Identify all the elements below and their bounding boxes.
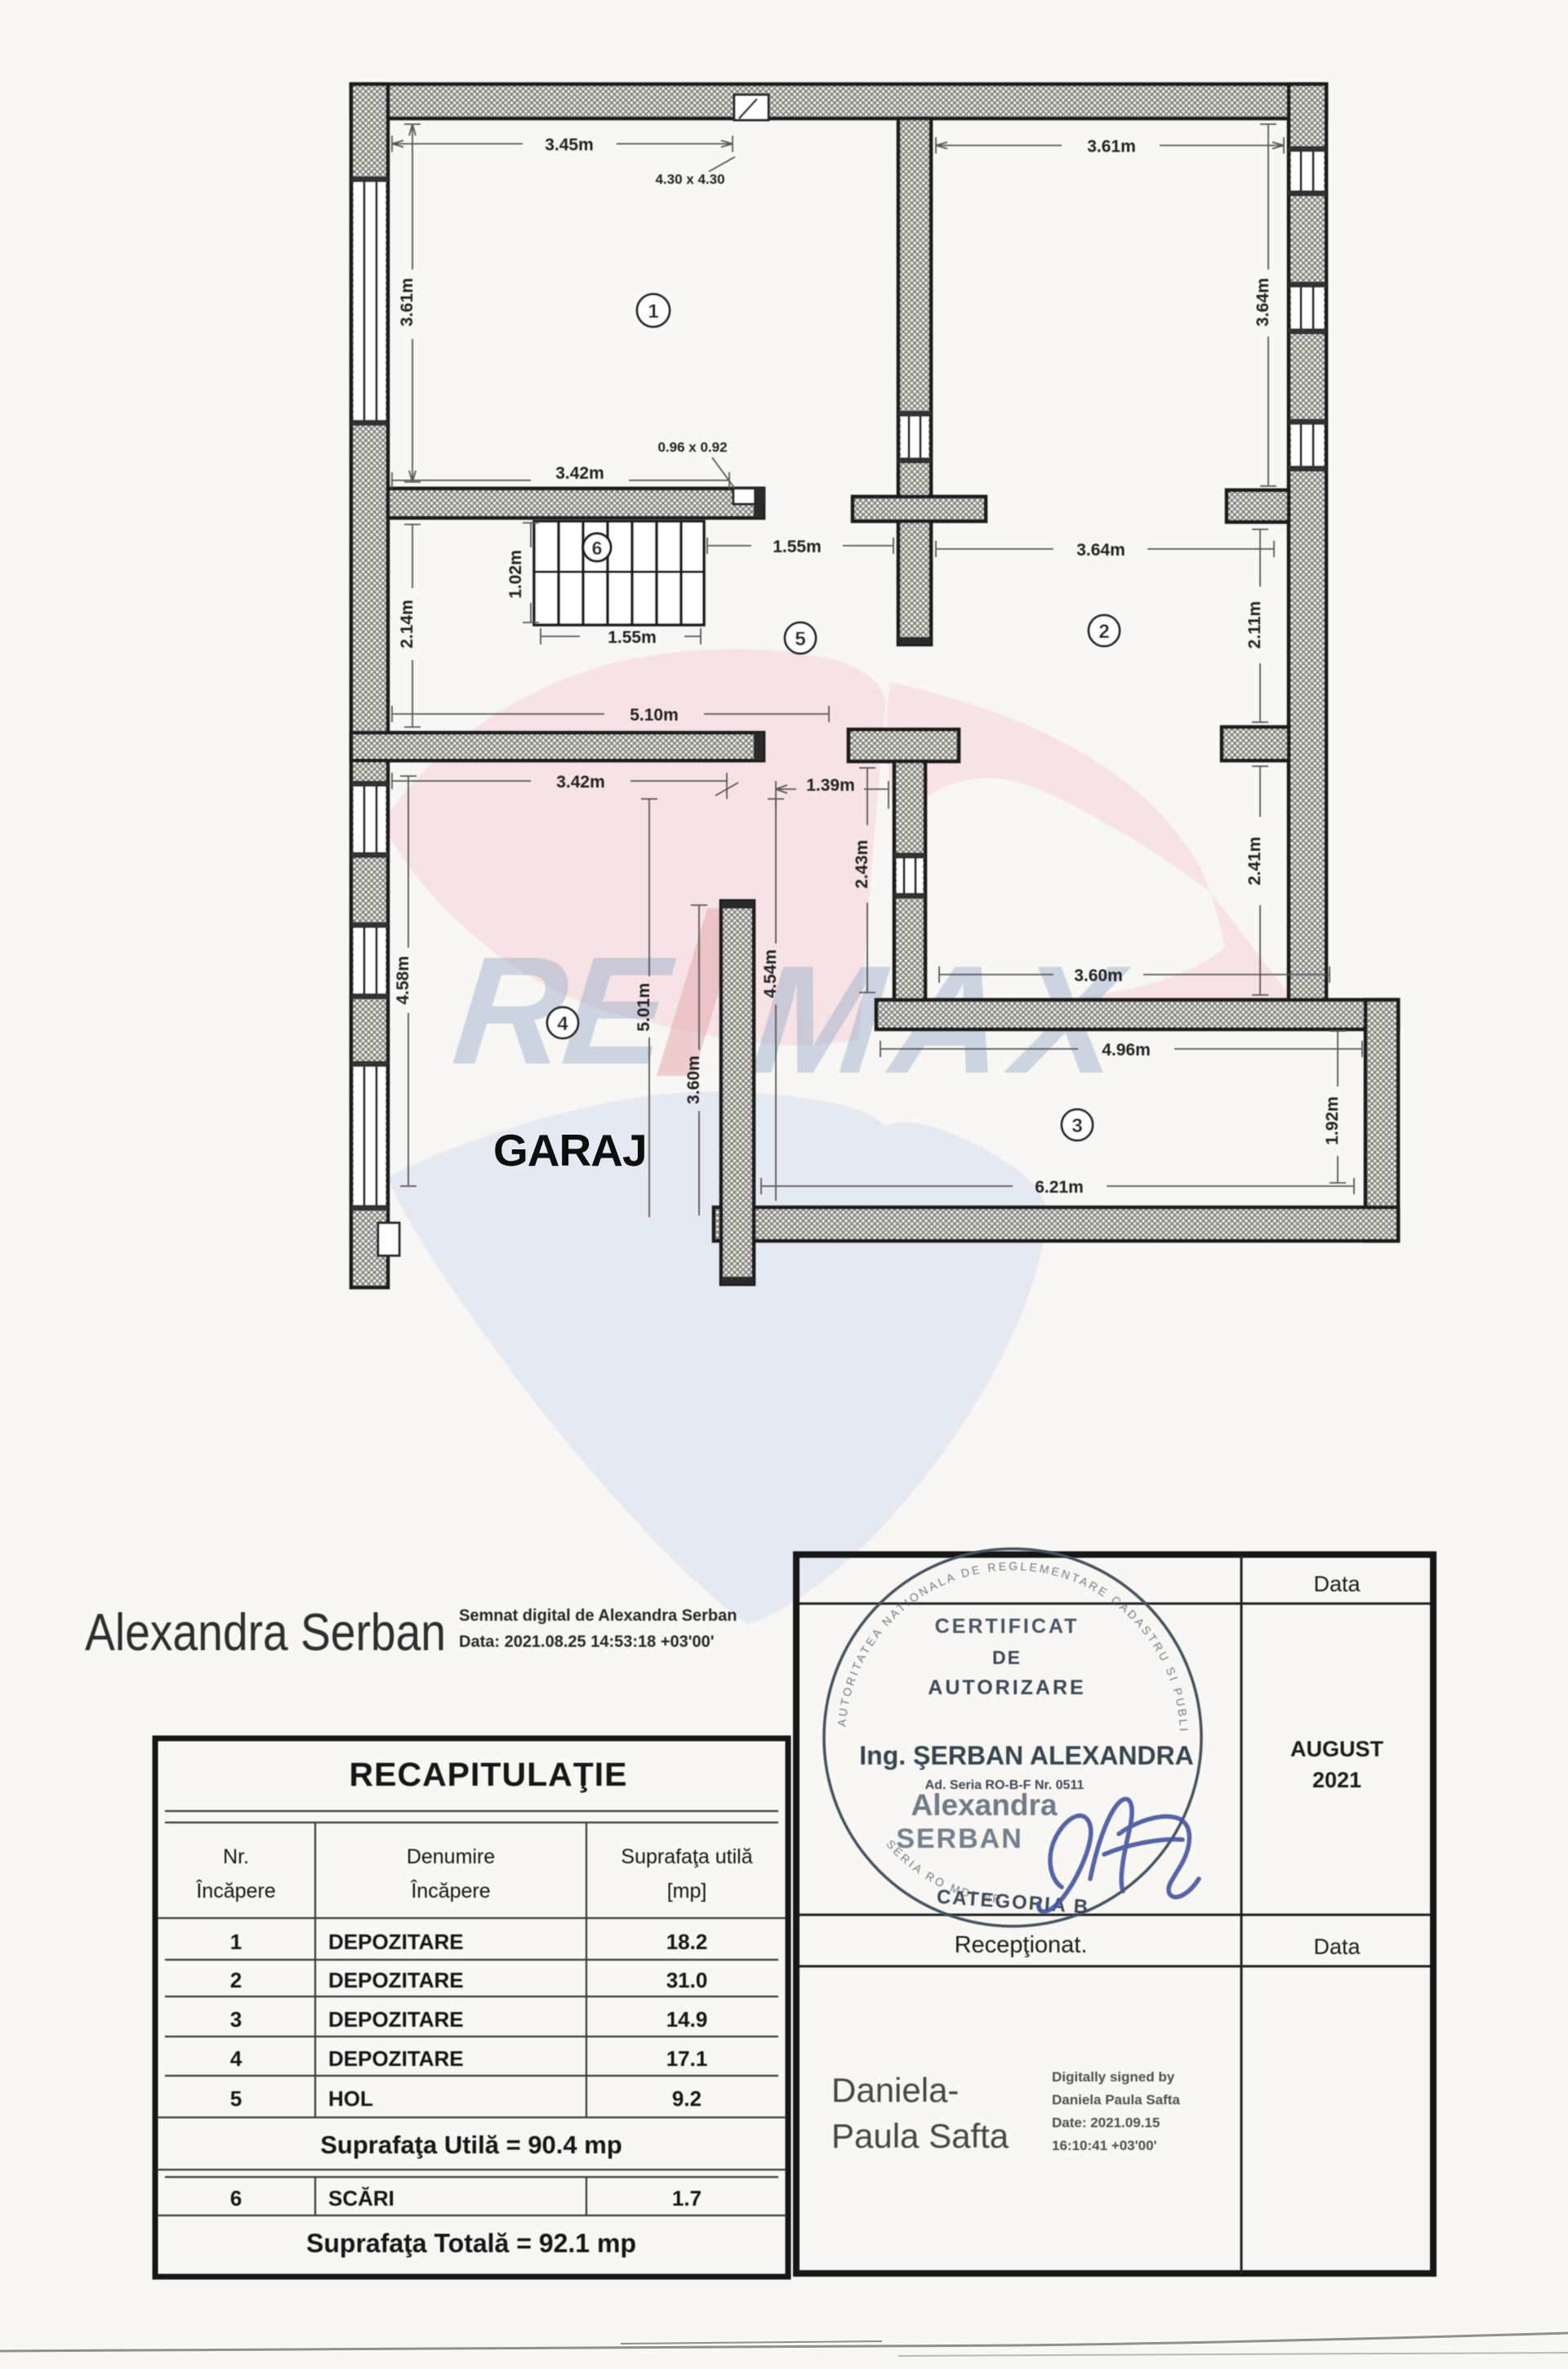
- svg-text:AUTORIZARE: AUTORIZARE: [928, 1676, 1085, 1699]
- svg-text:5.01m: 5.01m: [635, 983, 653, 1032]
- svg-text:5: 5: [795, 628, 805, 650]
- svg-text:4: 4: [557, 1013, 568, 1035]
- svg-text:CERTIFICAT: CERTIFICAT: [935, 1615, 1080, 1638]
- svg-text:3: 3: [230, 2007, 242, 2032]
- svg-text:1.7: 1.7: [672, 2186, 702, 2211]
- svg-text:4: 4: [230, 2046, 243, 2071]
- svg-text:Data: Data: [1313, 1934, 1361, 1959]
- svg-text:Nr.: Nr.: [223, 1845, 249, 1868]
- svg-text:2.11m: 2.11m: [1245, 601, 1264, 649]
- svg-text:4.96m: 4.96m: [1102, 1041, 1151, 1060]
- svg-text:Data: 2021.08.25 14:53:18 +03': Data: 2021.08.25 14:53:18 +03'00': [459, 1633, 715, 1651]
- svg-text:HOL: HOL: [328, 2086, 373, 2111]
- svg-text:2.43m: 2.43m: [853, 840, 871, 889]
- svg-text:Recepţionat.: Recepţionat.: [955, 1932, 1088, 1958]
- svg-text:Paula Safta: Paula Safta: [831, 2117, 1009, 2155]
- svg-text:DEPOZITARE: DEPOZITARE: [328, 2046, 464, 2071]
- svg-text:DEPOZITARE: DEPOZITARE: [328, 1930, 464, 1954]
- svg-text:3.45m: 3.45m: [545, 136, 594, 154]
- svg-text:9.2: 9.2: [672, 2086, 702, 2111]
- svg-text:5.10m: 5.10m: [630, 706, 679, 725]
- svg-text:3.61m: 3.61m: [1087, 137, 1136, 156]
- svg-text:18.2: 18.2: [666, 1930, 708, 1954]
- svg-text:DEPOZITARE: DEPOZITARE: [328, 2007, 464, 2032]
- svg-text:3.64m: 3.64m: [1254, 278, 1272, 327]
- svg-text:Suprafaţa Utilă = 90.4 mp: Suprafaţa Utilă = 90.4 mp: [320, 2130, 622, 2159]
- svg-text:2: 2: [230, 1968, 242, 1992]
- svg-text:2.14m: 2.14m: [398, 600, 416, 649]
- svg-text:3.60m: 3.60m: [1074, 966, 1123, 985]
- svg-text:3.60m: 3.60m: [684, 1055, 703, 1104]
- svg-text:6.21m: 6.21m: [1035, 1178, 1084, 1197]
- svg-text:GARAJ: GARAJ: [493, 1125, 647, 1176]
- svg-text:RECAPITULAŢIE: RECAPITULAŢIE: [350, 1756, 628, 1793]
- svg-text:DE: DE: [992, 1647, 1022, 1668]
- svg-text:SERBAN: SERBAN: [896, 1823, 1023, 1854]
- svg-text:1.92m: 1.92m: [1323, 1096, 1342, 1145]
- svg-text:3: 3: [1071, 1115, 1082, 1137]
- svg-text:[mp]: [mp]: [667, 1880, 707, 1903]
- svg-text:1: 1: [648, 301, 658, 323]
- svg-text:2: 2: [1098, 621, 1109, 643]
- svg-text:1.39m: 1.39m: [806, 776, 855, 795]
- svg-text:Suprafaţa Totală = 92.1 mp: Suprafaţa Totală = 92.1 mp: [306, 2228, 636, 2258]
- svg-text:6: 6: [592, 538, 603, 559]
- svg-text:3.42m: 3.42m: [555, 464, 604, 483]
- svg-text:1.55m: 1.55m: [773, 538, 822, 556]
- svg-text:Denumire: Denumire: [407, 1845, 495, 1868]
- svg-text:6: 6: [230, 2186, 242, 2211]
- svg-text:4.58m: 4.58m: [394, 956, 412, 1005]
- svg-text:3.61m: 3.61m: [398, 278, 416, 327]
- svg-text:1.55m: 1.55m: [608, 628, 657, 647]
- svg-text:5: 5: [230, 2086, 242, 2111]
- svg-text:17.1: 17.1: [666, 2046, 708, 2071]
- svg-text:AUGUST: AUGUST: [1290, 1737, 1384, 1761]
- svg-text:2.41m: 2.41m: [1245, 837, 1264, 886]
- svg-text:Alexandra: Alexandra: [911, 1788, 1058, 1822]
- svg-text:0.96 x 0.92: 0.96 x 0.92: [657, 439, 727, 455]
- svg-text:DEPOZITARE: DEPOZITARE: [328, 1968, 464, 1992]
- svg-text:Daniela Paula Safta: Daniela Paula Safta: [1052, 2092, 1180, 2108]
- svg-text:31.0: 31.0: [666, 1968, 708, 1992]
- svg-text:Daniela-: Daniela-: [831, 2071, 959, 2109]
- svg-text:3.64m: 3.64m: [1076, 541, 1125, 560]
- svg-text:Date: 2021.09.15: Date: 2021.09.15: [1052, 2115, 1160, 2130]
- svg-text:14.9: 14.9: [666, 2007, 708, 2032]
- svg-text:1.02m: 1.02m: [506, 550, 525, 599]
- svg-text:SCĂRI: SCĂRI: [328, 2186, 394, 2211]
- svg-text:3.42m: 3.42m: [556, 773, 605, 792]
- svg-text:Suprafaţa utilă: Suprafaţa utilă: [621, 1845, 752, 1868]
- svg-text:Alexandra Serban: Alexandra Serban: [85, 1603, 446, 1662]
- svg-text:4.54m: 4.54m: [761, 949, 780, 998]
- svg-text:Data: Data: [1313, 1572, 1361, 1596]
- svg-text:Încăpere: Încăpere: [195, 1879, 275, 1903]
- svg-text:Ing. ŞERBAN ALEXANDRA: Ing. ŞERBAN ALEXANDRA: [859, 1741, 1193, 1770]
- svg-text:16:10:41 +03'00': 16:10:41 +03'00': [1052, 2138, 1157, 2153]
- svg-text:Încăpere: Încăpere: [410, 1879, 490, 1903]
- svg-text:Digitally signed by: Digitally signed by: [1052, 2069, 1175, 2085]
- svg-text:1: 1: [230, 1930, 242, 1954]
- svg-text:4.30 x 4.30: 4.30 x 4.30: [655, 172, 724, 187]
- svg-text:2021: 2021: [1312, 1768, 1361, 1792]
- svg-text:Semnat digital de Alexandra Se: Semnat digital de Alexandra Serban: [459, 1607, 737, 1625]
